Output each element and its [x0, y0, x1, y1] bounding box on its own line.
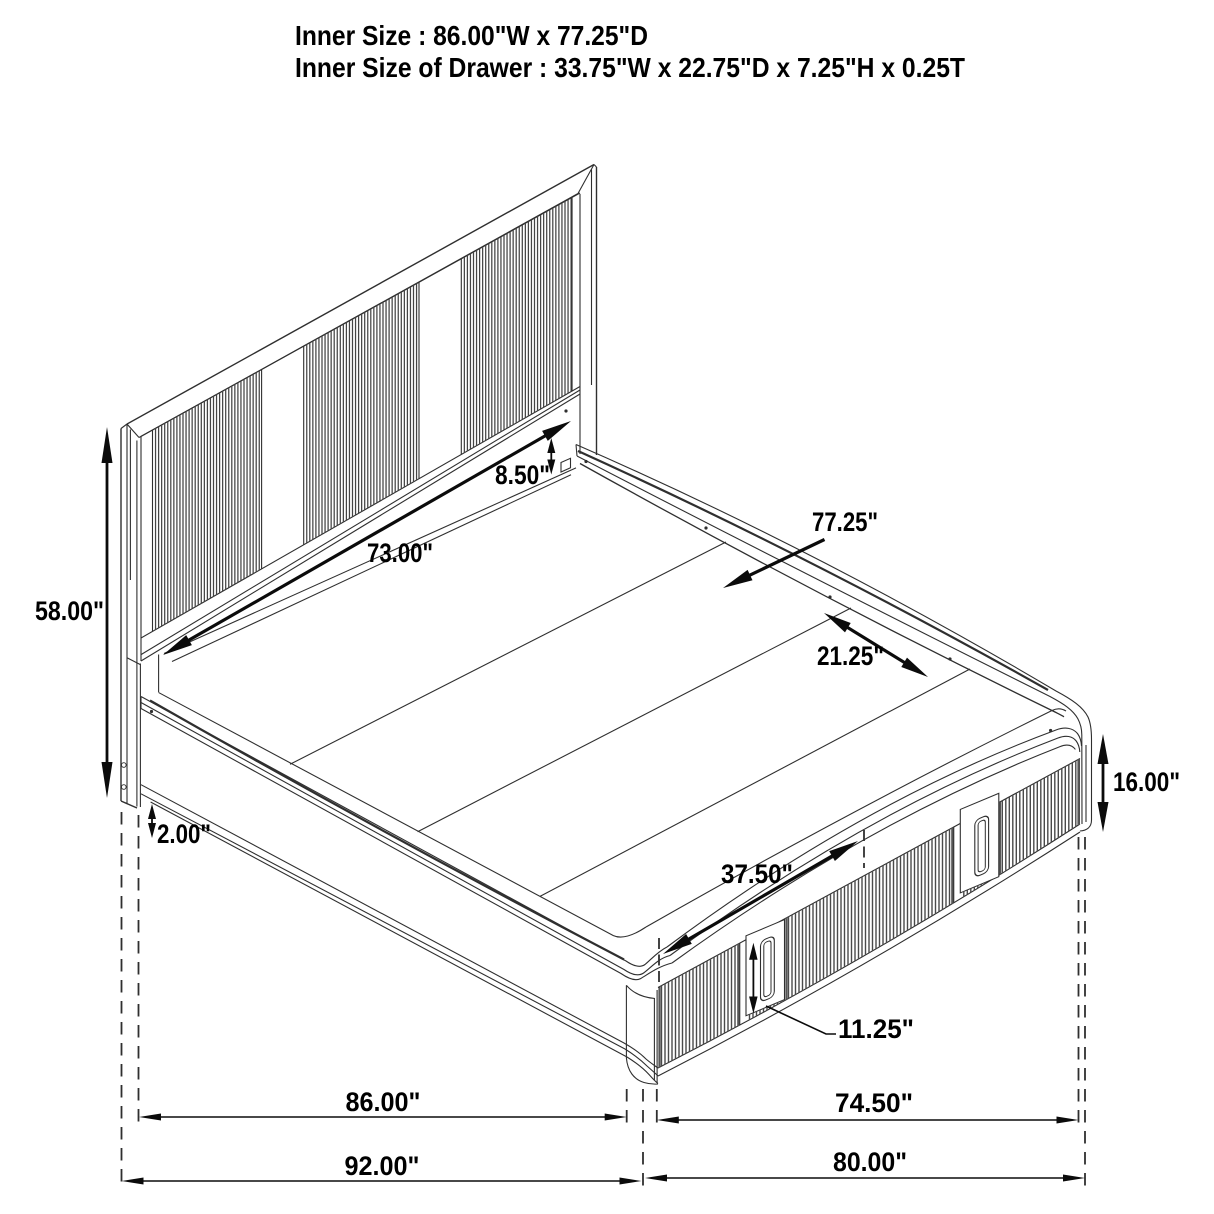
svg-text:92.00": 92.00": [345, 1151, 420, 1181]
svg-text:37.50": 37.50": [721, 859, 793, 889]
svg-text:21.25": 21.25": [817, 641, 884, 671]
svg-text:11.25": 11.25": [838, 1014, 914, 1044]
svg-text:2.00": 2.00": [157, 819, 211, 849]
svg-text:86.00": 86.00": [346, 1087, 421, 1117]
svg-text:77.25": 77.25": [812, 507, 878, 537]
svg-text:Inner Size : 86.00"W x 77.25"D: Inner Size : 86.00"W x 77.25"D: [295, 20, 648, 51]
svg-text:8.50": 8.50": [495, 460, 550, 490]
svg-text:Inner Size of Drawer : 33.75"W: Inner Size of Drawer : 33.75"W x 22.75"D…: [295, 52, 965, 83]
svg-text:58.00": 58.00": [35, 596, 104, 626]
svg-text:80.00": 80.00": [833, 1147, 907, 1177]
svg-text:73.00": 73.00": [367, 538, 433, 568]
svg-text:74.50": 74.50": [835, 1088, 913, 1118]
svg-text:16.00": 16.00": [1113, 767, 1180, 797]
